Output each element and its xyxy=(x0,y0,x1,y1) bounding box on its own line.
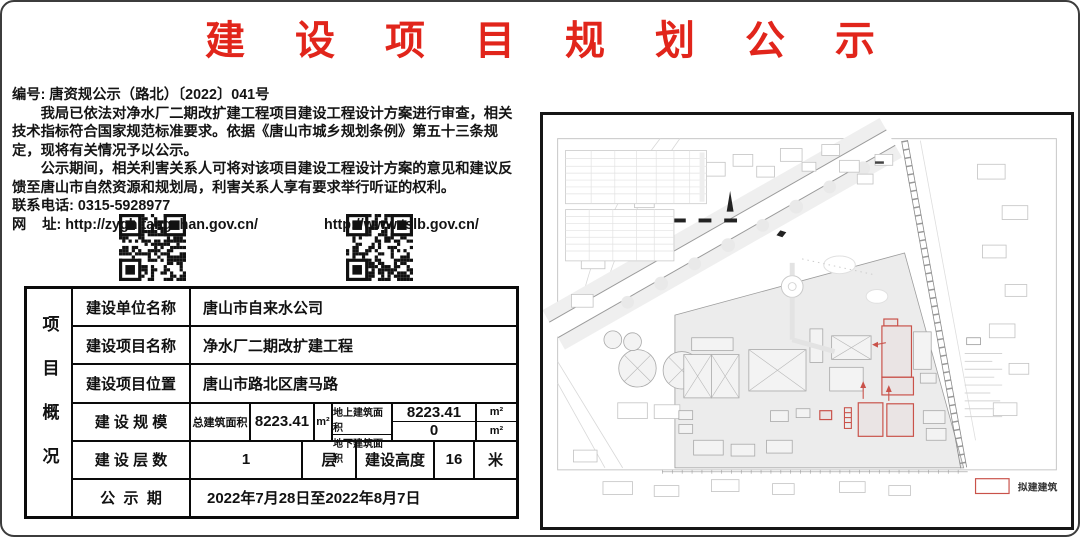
row-value-period: 2022年7月28日至2022年8月7日 xyxy=(191,480,516,516)
table-row-period: 公 示 期 2022年7月28日至2022年8月7日 xyxy=(73,480,516,516)
site-plan-map: 拟建建筑 xyxy=(543,115,1071,527)
qr-code-left xyxy=(119,214,186,281)
height-value: 16 xyxy=(435,442,475,478)
qr-code-right-image xyxy=(346,214,413,281)
table-side-header: 项目概况 xyxy=(27,289,73,516)
scale-sub-values: 8223.41 0 xyxy=(393,404,477,440)
table-row-name: 建设项目名称 净水厂二期改扩建工程 xyxy=(73,327,516,365)
notice-sheet: 建设项目规划公示 编号: 唐资规公示（路北）〔2022〕041号 我局已依法对净… xyxy=(0,0,1080,537)
website-label: 网 址: xyxy=(12,217,65,233)
scale-cells: 总建筑面积 8223.41 m² 地上建筑面积 地下建筑面积 8223.41 0… xyxy=(191,404,516,440)
website-line: 网 址: http://zygh.tangshan.gov.cn/http://… xyxy=(12,216,518,235)
table-row-location: 建设项目位置 唐山市路北区唐马路 xyxy=(73,365,516,403)
doc-number: 编号: 唐资规公示（路北）〔2022〕041号 xyxy=(12,86,518,105)
scale-total-value: 8223.41 xyxy=(251,404,315,440)
boundary-dashes xyxy=(673,218,737,222)
map-legend: 拟建建筑 xyxy=(976,479,1058,494)
row-label-scale: 建 设 规 模 xyxy=(73,404,191,440)
row-label-name: 建设项目名称 xyxy=(73,327,191,363)
scale-above-value: 8223.41 xyxy=(393,404,475,423)
scale-under-value: 0 xyxy=(393,422,475,440)
scale-under-unit: m² xyxy=(477,422,516,440)
notice-paragraph-1: 我局已依法对净水厂二期改扩建工程项目建设工程设计方案进行审查，相关技术指标符合国… xyxy=(12,105,518,161)
height-unit: 米 xyxy=(475,442,516,478)
floors-unit: 层 xyxy=(303,442,357,478)
site-plan-frame: 拟建建筑 xyxy=(540,112,1074,530)
row-label-unit: 建设单位名称 xyxy=(73,289,191,325)
table-row-scale: 建 设 规 模 总建筑面积 8223.41 m² 地上建筑面积 地下建筑面积 8… xyxy=(73,404,516,442)
floors-value: 1 xyxy=(191,442,303,478)
scale-total-label: 总建筑面积 xyxy=(191,404,251,440)
table-row-unit: 建设单位名称 唐山市自来水公司 xyxy=(73,289,516,327)
scale-above-unit: m² xyxy=(477,404,516,423)
contact-phone: 联系电话: 0315-5928977 xyxy=(12,197,518,216)
legend-proposed-label: 拟建建筑 xyxy=(1018,481,1058,494)
row-value-unit: 唐山市自来水公司 xyxy=(191,289,516,325)
row-label-floors: 建 设 层 数 xyxy=(73,442,191,478)
height-label: 建设高度 xyxy=(357,442,435,478)
row-value-name: 净水厂二期改扩建工程 xyxy=(191,327,516,363)
map-data-table-1 xyxy=(566,150,707,203)
table-row-floors: 建 设 层 数 1 层 建设高度 16 米 xyxy=(73,442,516,480)
page-title: 建设项目规划公示 xyxy=(2,8,1078,66)
row-label-location: 建设项目位置 xyxy=(73,365,191,401)
scale-total-unit: m² xyxy=(315,404,333,440)
project-overview-table: 项目概况 建设单位名称 唐山市自来水公司 建设项目名称 净水厂二期改扩建工程 建… xyxy=(24,286,519,519)
map-data-table-2 xyxy=(566,210,674,261)
notice-paragraph-2: 公示期间，相关利害关系人可将对该项目建设工程设计方案的意见和建议反馈至唐山市自然… xyxy=(12,160,518,197)
notice-text-block: 编号: 唐资规公示（路北）〔2022〕041号 我局已依法对净水厂二期改扩建工程… xyxy=(12,86,518,234)
qr-code-left-image xyxy=(119,214,186,281)
qr-code-right xyxy=(346,214,413,281)
scale-sub-units: m² m² xyxy=(477,404,516,440)
scale-above-label: 地上建筑面积 xyxy=(333,404,391,435)
scale-sub-labels: 地上建筑面积 地下建筑面积 xyxy=(333,404,393,440)
row-value-location: 唐山市路北区唐马路 xyxy=(191,365,516,401)
row-label-period: 公 示 期 xyxy=(73,480,191,516)
table-rows: 建设单位名称 唐山市自来水公司 建设项目名称 净水厂二期改扩建工程 建设项目位置… xyxy=(73,289,516,516)
floors-cells: 1 层 建设高度 16 米 xyxy=(191,442,516,478)
